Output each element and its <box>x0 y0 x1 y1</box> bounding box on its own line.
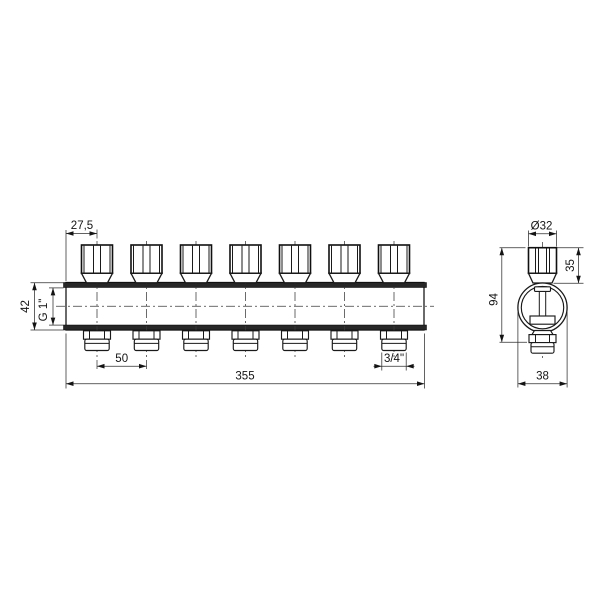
dim-label-overall-height: 94 <box>489 293 501 306</box>
dim-label-inlet-thread: G 1" <box>38 299 50 322</box>
manifold-bottom-band <box>64 325 427 330</box>
dim-label-total-length: 355 <box>235 371 254 383</box>
dimension-outlet-spacing: 50 <box>97 353 147 368</box>
manifold-drawing: 27,5 42 G 1" 50 <box>0 0 600 600</box>
dim-label-cap-diameter: Ø32 <box>531 220 553 232</box>
valve-cap-skirt-side <box>529 273 557 283</box>
valve-seat-plate <box>530 316 555 324</box>
outlet-neck-side <box>532 331 553 335</box>
valve-stem-flange <box>535 287 551 292</box>
dim-label-body-width: 38 <box>536 371 549 383</box>
dimension-outlet-thread: 3/4" <box>374 353 415 371</box>
dim-label-cap-height: 35 <box>565 259 577 272</box>
dim-label-outlet-thread: 3/4" <box>384 353 404 365</box>
valve-cap-side <box>529 248 557 274</box>
outlet-collar-side <box>531 343 554 354</box>
dim-label-outlet-spacing: 50 <box>115 353 128 365</box>
technical-drawing-canvas: 27,5 42 G 1" 50 <box>0 0 600 600</box>
side-view: Ø32 35 94 38 <box>489 220 584 387</box>
dim-label-manifold-height: 42 <box>20 300 32 313</box>
outlet-nut-side <box>529 335 556 343</box>
dim-label-first-valve-offset: 27,5 <box>71 220 93 232</box>
dimension-cap-height: 35 <box>554 248 584 283</box>
front-view: 27,5 42 G 1" 50 <box>20 220 434 389</box>
